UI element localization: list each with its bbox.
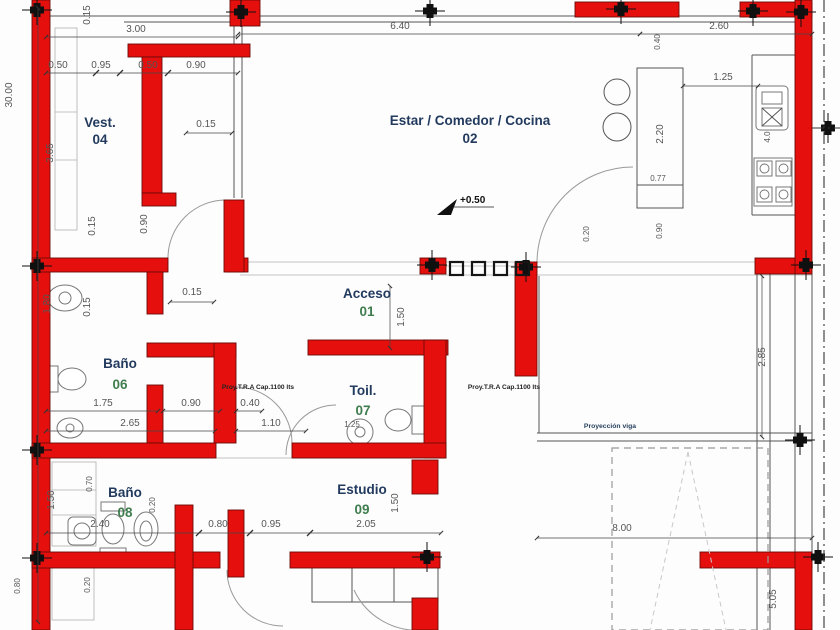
dim-label: 0.20 bbox=[148, 497, 157, 513]
vest-wardrobe bbox=[55, 28, 77, 230]
kitchen-sink-bowl bbox=[603, 113, 631, 141]
dim-label: 2.65 bbox=[120, 418, 140, 429]
dim-label: 8.00 bbox=[612, 523, 632, 534]
dim-label: 6.40 bbox=[390, 21, 410, 32]
column-icon bbox=[450, 262, 463, 275]
dim-label: 3.00 bbox=[126, 24, 146, 35]
column-icon bbox=[472, 262, 485, 275]
room-number-toil: 07 bbox=[355, 403, 370, 418]
tank-note: Proy.T.R.A Cap.1100 lts bbox=[468, 384, 541, 391]
dim-label: 1.50 bbox=[396, 307, 407, 327]
room-label-estar: Estar / Comedor / Cocina bbox=[390, 113, 551, 128]
dim-label: 0.77 bbox=[650, 174, 666, 183]
dim-label: 0.80 bbox=[13, 578, 22, 594]
dim-label: 5.05 bbox=[768, 589, 779, 609]
dim-label: 0.20 bbox=[582, 226, 591, 242]
room-number-estudio: 09 bbox=[354, 502, 369, 517]
column-icon bbox=[494, 262, 507, 275]
beam-note: Proyección viga bbox=[584, 423, 636, 430]
stove-icon bbox=[754, 158, 792, 206]
door-arc bbox=[537, 167, 633, 263]
tank-note: Proy.T.R.A Cap.1100 lts bbox=[222, 384, 295, 391]
floor-plan-page: 3.00 6.40 2.60 0.50 0.95 0.50 0.90 0.15 … bbox=[0, 0, 840, 630]
dim-label: 2.20 bbox=[655, 124, 666, 144]
bath8-fixtures bbox=[68, 502, 158, 556]
dim-label: 1.25 bbox=[344, 420, 360, 429]
level-marker-icon bbox=[437, 199, 457, 215]
room-number-bano6: 06 bbox=[112, 377, 128, 392]
room-label-estudio: Estudio bbox=[337, 482, 387, 497]
dim-label: 2.40 bbox=[90, 519, 110, 530]
dim-label: 0.15 bbox=[82, 297, 93, 317]
dim-label: 0.90 bbox=[655, 223, 664, 239]
dim-label: 0.15 bbox=[87, 216, 98, 236]
dim-label: 0.70 bbox=[85, 476, 94, 492]
dim-label: 2.60 bbox=[709, 21, 729, 32]
room-label-acceso: Acceso bbox=[343, 286, 391, 301]
door-arc bbox=[227, 570, 283, 626]
dim-label: 0.15 bbox=[82, 5, 93, 25]
dim-label: 2.85 bbox=[757, 347, 768, 367]
dim-label: 0.90 bbox=[181, 398, 201, 409]
dim-label: 1.80 bbox=[42, 294, 53, 314]
bath6-fixtures bbox=[48, 285, 86, 438]
dim-label: 0.50 bbox=[138, 60, 158, 71]
dim-label: 2.05 bbox=[356, 519, 376, 530]
dim-label: 1.25 bbox=[713, 72, 733, 83]
room-label-toil: Toil. bbox=[350, 383, 377, 398]
dim-label: 1.50 bbox=[390, 493, 401, 513]
estudio-desk bbox=[312, 566, 438, 602]
toilet-tank-icon bbox=[412, 406, 424, 434]
dim-label: 0.90 bbox=[186, 60, 206, 71]
oven-icon bbox=[756, 86, 788, 130]
dim-label: 0.80 bbox=[208, 519, 228, 530]
room-number-bano8: 08 bbox=[117, 505, 133, 520]
dim-label: 0.90 bbox=[139, 214, 150, 234]
dim-label: 1.10 bbox=[261, 418, 281, 429]
dim-label: 0.40 bbox=[653, 34, 662, 50]
dim-label: 1.50 bbox=[46, 490, 57, 510]
carport-projection bbox=[612, 448, 768, 630]
dim-label: 3.65 bbox=[45, 143, 56, 163]
dim-label: 0.50 bbox=[48, 60, 68, 71]
dim-label: 0.20 bbox=[83, 577, 92, 593]
dim-label: 0.95 bbox=[261, 519, 281, 530]
dim-label: 1.75 bbox=[93, 398, 113, 409]
room-number-acceso: 01 bbox=[359, 304, 375, 319]
door-arc bbox=[236, 387, 292, 443]
door-arc bbox=[168, 200, 226, 258]
room-number-vest: 04 bbox=[92, 132, 108, 147]
room-label-bano6: Baño bbox=[103, 356, 137, 371]
dim-label: 0.15 bbox=[196, 119, 216, 130]
toilet-icon bbox=[58, 368, 86, 390]
room-label-vest: Vest. bbox=[84, 115, 116, 130]
room-label-bano8: Baño bbox=[108, 485, 142, 500]
dim-label: 0.95 bbox=[91, 60, 111, 71]
dim-label: 30.00 bbox=[4, 82, 15, 107]
dim-label: 0.40 bbox=[240, 398, 260, 409]
dim-label: 4.0 bbox=[763, 131, 772, 143]
floor-plan-canvas: 3.00 6.40 2.60 0.50 0.95 0.50 0.90 0.15 … bbox=[0, 0, 840, 630]
level-label: +0.50 bbox=[460, 195, 486, 206]
dim-label: 0.15 bbox=[182, 287, 202, 298]
kitchen-sink-bowl bbox=[604, 79, 630, 105]
room-number-estar: 02 bbox=[462, 131, 477, 146]
toilet-icon bbox=[385, 409, 411, 431]
